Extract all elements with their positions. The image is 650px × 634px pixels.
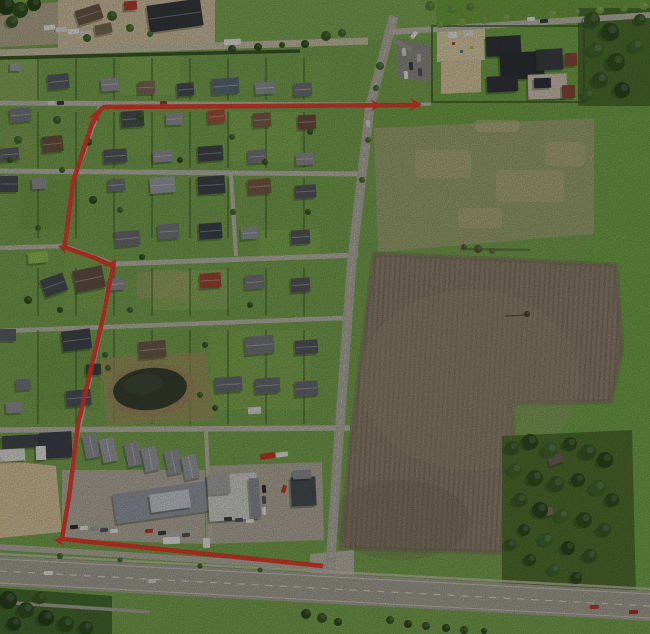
- aerial-photo: [0, 0, 650, 634]
- photo-grain: [0, 0, 650, 634]
- aerial-map-view[interactable]: [0, 0, 650, 634]
